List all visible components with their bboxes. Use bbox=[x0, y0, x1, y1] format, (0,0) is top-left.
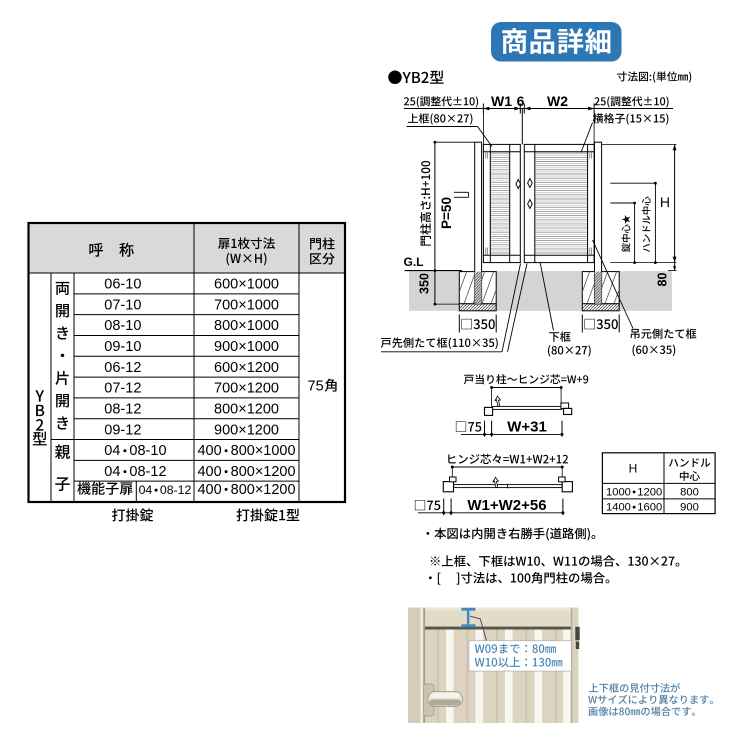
svg-text:08-12: 08-12 bbox=[104, 402, 141, 418]
svg-text:6: 6 bbox=[517, 93, 525, 109]
svg-text:600×1000: 600×1000 bbox=[214, 277, 279, 293]
svg-text:800×1000: 800×1000 bbox=[214, 318, 279, 334]
svg-text:08-12: 08-12 bbox=[129, 464, 166, 480]
svg-text:400: 400 bbox=[197, 464, 221, 480]
svg-text:W2: W2 bbox=[547, 93, 568, 109]
svg-text:350: 350 bbox=[417, 273, 431, 294]
svg-text:08-12: 08-12 bbox=[160, 483, 192, 497]
svg-text:600×1200: 600×1200 bbox=[214, 360, 279, 376]
svg-text:H: H bbox=[629, 462, 638, 476]
svg-text:W+31: W+31 bbox=[507, 419, 547, 436]
svg-text:1000: 1000 bbox=[606, 486, 631, 498]
svg-text:04: 04 bbox=[139, 483, 153, 497]
svg-text:75: 75 bbox=[308, 379, 324, 395]
svg-text:1200: 1200 bbox=[637, 486, 662, 498]
svg-text:09-12: 09-12 bbox=[104, 422, 141, 438]
svg-text:900: 900 bbox=[680, 502, 699, 514]
svg-text:06-10: 06-10 bbox=[104, 277, 141, 293]
svg-text:700×1000: 700×1000 bbox=[214, 297, 279, 313]
svg-text:07-10: 07-10 bbox=[104, 297, 141, 313]
svg-text:400: 400 bbox=[197, 443, 221, 459]
svg-text:800: 800 bbox=[680, 486, 699, 498]
svg-text:400: 400 bbox=[197, 482, 221, 498]
svg-text:W1: W1 bbox=[491, 93, 512, 109]
svg-text:800×1200: 800×1200 bbox=[214, 402, 279, 418]
svg-text:800×1200: 800×1200 bbox=[231, 464, 296, 480]
svg-text:900×1000: 900×1000 bbox=[214, 339, 279, 355]
svg-text:08-10: 08-10 bbox=[129, 443, 166, 459]
svg-text:07-12: 07-12 bbox=[104, 381, 141, 397]
svg-text:800×1000: 800×1000 bbox=[231, 443, 296, 459]
svg-text:H: H bbox=[660, 194, 670, 210]
svg-text:900×1200: 900×1200 bbox=[214, 422, 279, 438]
svg-text:06-12: 06-12 bbox=[104, 360, 141, 376]
svg-text:04: 04 bbox=[104, 443, 120, 459]
svg-text:P=50: P=50 bbox=[439, 197, 454, 229]
svg-text:1400: 1400 bbox=[606, 502, 631, 514]
svg-text:700×1200: 700×1200 bbox=[214, 381, 279, 397]
svg-text:09-10: 09-10 bbox=[104, 339, 141, 355]
svg-text:80: 80 bbox=[656, 273, 670, 287]
svg-text:800×1200: 800×1200 bbox=[231, 482, 296, 498]
svg-text:08-10: 08-10 bbox=[104, 318, 141, 334]
svg-text:W1+W2+56: W1+W2+56 bbox=[467, 497, 546, 514]
svg-text:1600: 1600 bbox=[637, 502, 662, 514]
svg-text:04: 04 bbox=[104, 464, 120, 480]
svg-text:G.L: G.L bbox=[404, 255, 424, 269]
